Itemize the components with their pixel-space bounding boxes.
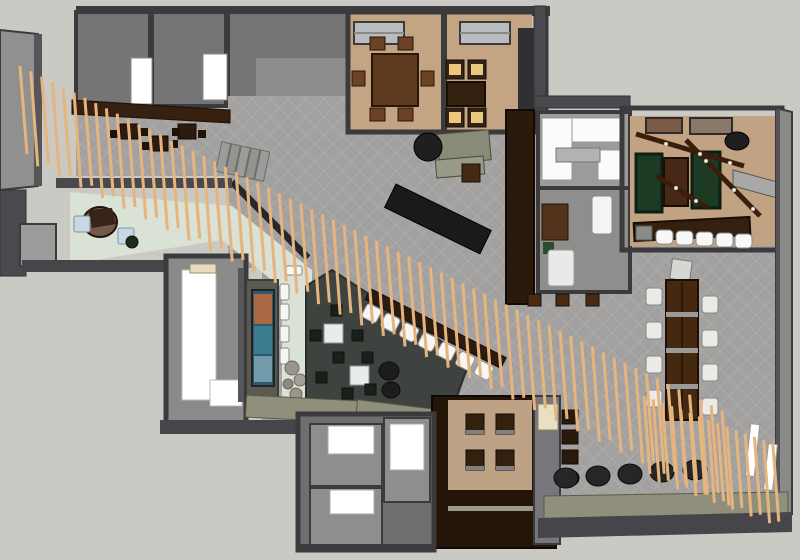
dining-chair-1a [370, 37, 385, 50]
rock-feature-2 [294, 374, 306, 386]
stair-shaft-beam [190, 264, 216, 273]
nook-chair-1 [110, 130, 118, 138]
lounge-drum-1 [379, 362, 399, 380]
shaft-bottom-wall [160, 420, 310, 434]
communal-chair-l3 [646, 356, 662, 373]
pass-worktop [556, 148, 600, 162]
wall-picture-1 [646, 118, 682, 133]
dining-table-2 [447, 82, 485, 106]
beam-light-3 [728, 161, 732, 165]
mural-orange-area [254, 294, 272, 324]
service-side-table [462, 164, 480, 182]
dining-chair-1c [370, 108, 385, 121]
pool-table-1 [636, 154, 662, 212]
nook-chair-2 [140, 128, 148, 136]
kitchen-door-2 [203, 54, 227, 100]
nook-chair-6 [198, 130, 206, 138]
bar-service-end [636, 226, 652, 240]
restroom-bottom-wall [298, 544, 434, 552]
lounge-stool-4 [333, 352, 344, 363]
lounge-drum-chair-2 [586, 466, 610, 486]
lit-chair-4-cushion [471, 112, 483, 123]
booth-chair-1-base [466, 430, 484, 434]
lounge-drum-chair-1 [554, 468, 578, 488]
bar-stool-3 [696, 232, 713, 246]
gallery-bench-4 [280, 348, 289, 364]
communal-table-band-1 [666, 312, 698, 317]
communal-chair-r1 [702, 296, 718, 313]
hall-stool-1 [528, 294, 541, 306]
communal-chair-r2 [702, 330, 718, 347]
lounge-stool-6 [316, 372, 327, 383]
gallery-bench-1 [280, 284, 289, 300]
communal-table-band-3 [666, 384, 698, 389]
booth-chair-3-base [466, 466, 484, 470]
host-podium [670, 259, 693, 282]
dining-chair-1d [398, 108, 413, 121]
lit-chair-1-cushion [449, 64, 461, 75]
pass-counter-3 [598, 150, 622, 180]
reception-seat-1 [74, 216, 90, 232]
restroom-3-fixture [330, 490, 374, 514]
hall-stool-3 [586, 294, 599, 306]
floor-plan-rendering [0, 0, 800, 560]
bar-stool-5 [735, 234, 752, 248]
beam-light-2 [698, 152, 702, 156]
lounge-stool-2 [352, 330, 363, 341]
lounge-stool-7 [342, 388, 353, 399]
booth-pit-floor [448, 400, 532, 490]
nook-chair-5 [172, 128, 180, 136]
beam-light-1 [664, 142, 668, 146]
booth-chair-2-base [496, 430, 514, 434]
dining-chair-1e [352, 71, 365, 86]
nook-chair-3 [142, 142, 150, 150]
gallery-bench-3 [280, 326, 289, 342]
wine-shelf-2 [562, 430, 578, 444]
restroom-2-fixture [390, 424, 424, 470]
communal-table-band-2 [666, 348, 698, 353]
pass-counter-2 [572, 118, 622, 142]
kitchen-door-1 [131, 58, 152, 104]
wine-display-wall [506, 110, 534, 304]
bar-stool-1 [656, 230, 673, 244]
corridor-wall-h [534, 96, 630, 108]
floor-plan-viewport [0, 0, 800, 560]
lounge-stool-3 [310, 330, 321, 341]
office-table [548, 250, 574, 286]
wine-shelf-3 [562, 450, 578, 464]
communal-chair-l1 [646, 288, 662, 305]
gallery-bench-2 [280, 304, 289, 320]
dining-chair-1b [398, 37, 413, 50]
beam-light-5 [732, 188, 736, 192]
beam-light-7 [674, 186, 678, 190]
office-desk [542, 204, 568, 240]
office-door [592, 196, 612, 234]
lounge-stool-5 [362, 352, 373, 363]
dining-chair-1f [421, 71, 434, 86]
lounge-table-2 [350, 366, 369, 385]
west-door [20, 224, 56, 266]
lounge-drum-chair-4 [650, 462, 674, 482]
service-round-table [414, 133, 442, 161]
nook-table-3 [178, 124, 196, 139]
communal-chair-r3 [702, 364, 718, 381]
mural-teal-area [254, 326, 272, 354]
communal-chair-l2 [646, 322, 662, 339]
lounge-drum-chair-3 [618, 464, 642, 484]
beam-light-6 [751, 207, 755, 211]
restroom-1-fixture [328, 426, 374, 454]
beam-light-8 [694, 199, 698, 203]
wall-picture-2 [690, 118, 732, 134]
stair-shaft-floor-2 [210, 380, 242, 406]
rock-feature-1 [285, 361, 299, 375]
black-drum-cabinet [725, 132, 749, 150]
rock-feature-3 [283, 379, 293, 389]
nook-table-2 [150, 136, 168, 151]
bar-stool-4 [716, 233, 733, 247]
lounge-drum-2 [382, 382, 400, 398]
hall-stool-2 [556, 294, 569, 306]
reception-plant [126, 236, 138, 248]
beam-light-4 [704, 159, 708, 163]
booth-chair-4-base [496, 466, 514, 470]
lit-chair-3-cushion [449, 112, 461, 123]
floor-plan-layers [0, 0, 800, 560]
bar-stool-2 [676, 231, 693, 245]
dining-table-1 [372, 54, 418, 106]
stair-shaft-wall [238, 268, 244, 402]
mural-sky-area [254, 356, 272, 382]
lit-chair-2-cushion [471, 64, 483, 75]
lounge-stool-8 [365, 384, 376, 395]
lounge-table-1 [324, 324, 343, 343]
